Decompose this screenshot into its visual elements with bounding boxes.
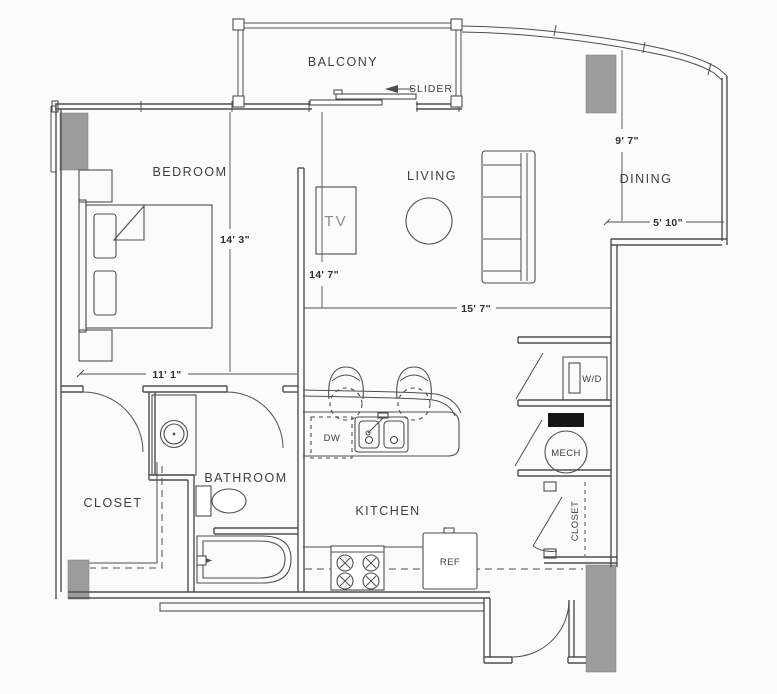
bed — [79, 200, 212, 332]
sliding-door — [310, 90, 416, 105]
dim-label-living-length: 14' 7" — [309, 269, 339, 281]
ref-label: REF — [440, 557, 460, 568]
dining-label: DINING — [620, 172, 673, 186]
exterior-ledge — [160, 603, 484, 611]
balcony-label: BALCONY — [308, 55, 378, 69]
closet-label: CLOSET — [83, 496, 142, 510]
wd-label: W/D — [582, 374, 602, 385]
vanity-sink — [152, 395, 196, 475]
closet-door-arc — [83, 392, 143, 452]
headboard — [79, 200, 86, 332]
sofa — [482, 151, 535, 283]
dim-label-bedroom-length: 14' 3" — [220, 234, 250, 246]
slider-label: SLIDER — [409, 83, 453, 95]
nightstand — [79, 330, 112, 361]
dim-label-bedroom-width: 11' 1" — [152, 369, 181, 381]
mech-panel — [548, 413, 584, 427]
column-top-left — [60, 113, 88, 170]
dim-label-dining-width: 5' 10" — [653, 217, 683, 229]
round-table — [406, 198, 452, 244]
dim-bedroom-width — [77, 370, 297, 377]
entry-closet-label: CLOSET — [570, 501, 581, 541]
bed-frame — [86, 205, 212, 328]
toilet — [196, 486, 246, 516]
floor-plan-svg: BALCONY SLIDER BEDROOM LIVING DINING KIT… — [0, 0, 777, 694]
dw-label: DW — [324, 433, 341, 444]
pillow — [94, 214, 116, 258]
mech-equipment — [545, 413, 587, 473]
kitchen-peninsula — [303, 390, 461, 456]
kitchen-label: KITCHEN — [355, 504, 420, 518]
kitchen-sink — [355, 413, 408, 452]
dim-label-living-width: 15' 7" — [461, 303, 491, 315]
window-mullions-top — [141, 101, 459, 112]
column-top-right — [586, 55, 616, 113]
pillow — [94, 271, 116, 315]
tub-faucet — [197, 556, 206, 565]
floor-plan: BALCONY SLIDER BEDROOM LIVING DINING KIT… — [0, 0, 777, 694]
tv-label: TV — [324, 213, 347, 230]
column-bottom-left — [68, 560, 89, 599]
dim-label-dining-length: 9' 7" — [615, 135, 639, 147]
bathroom-door-arc — [227, 392, 283, 448]
exterior-walls — [51, 25, 727, 663]
mech-label: MECH — [551, 448, 581, 459]
blanket-fold — [114, 206, 144, 240]
stove — [331, 546, 384, 590]
bedroom-label: BEDROOM — [152, 165, 227, 179]
nightstand — [79, 170, 112, 202]
bathroom-label: BATHROOM — [204, 471, 287, 485]
entry-closet-door — [533, 497, 562, 551]
entry-door — [512, 600, 574, 657]
bathtub — [197, 536, 291, 583]
column-bottom-right — [586, 565, 616, 672]
closet-rod-and-shelf — [88, 462, 162, 568]
wd-door — [516, 353, 543, 399]
mech-door — [515, 420, 542, 466]
living-label: LIVING — [407, 169, 457, 183]
